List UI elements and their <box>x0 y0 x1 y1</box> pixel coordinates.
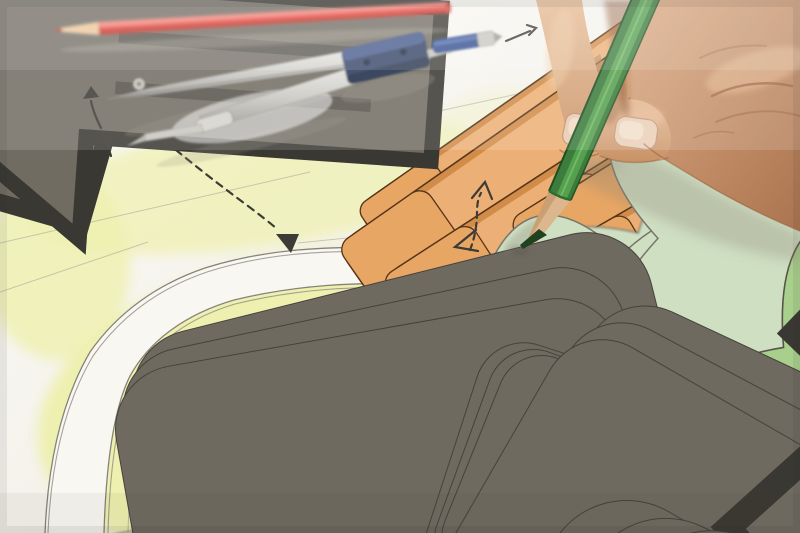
scene-canvas <box>0 0 800 533</box>
photo-landscape-plan <box>0 0 800 533</box>
